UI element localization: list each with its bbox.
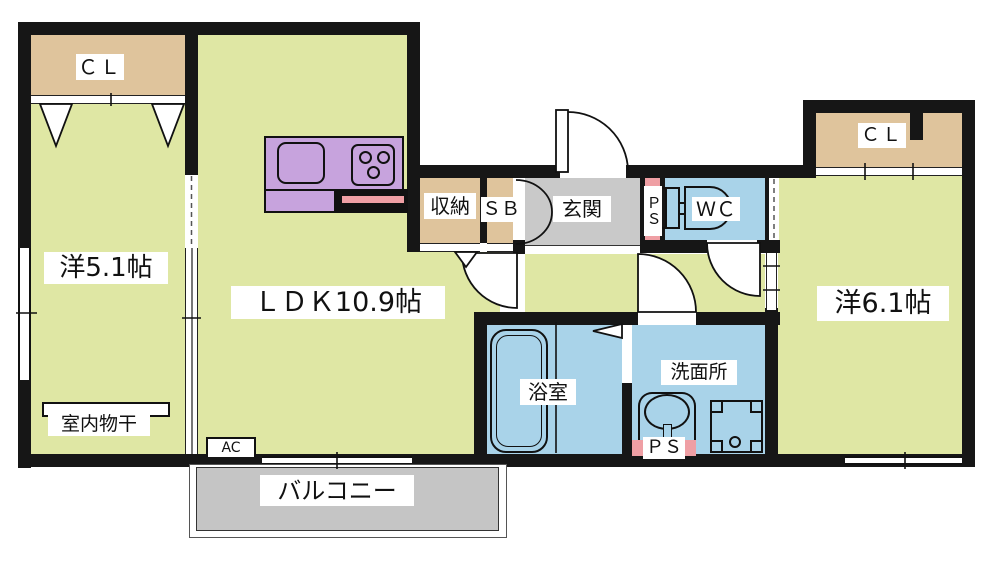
label-western-5-1: 洋5.1帖 — [44, 252, 168, 284]
bath-folding-door-icon — [593, 324, 622, 338]
shoe-box-door-arc — [516, 212, 552, 244]
label-entrance: 玄関 — [553, 196, 611, 222]
wc-door-arc — [707, 243, 760, 296]
label-pipe-space-bottom: ＰＳ — [643, 437, 685, 459]
label-ldk: ＬＤＫ10.9帖 — [231, 286, 445, 319]
shoe-box-door-arc — [516, 180, 552, 212]
entrance-door-leaf — [556, 110, 568, 172]
label-closet-right: ＣＬ — [858, 123, 906, 148]
label-washroom: 洗面所 — [661, 360, 737, 385]
entrance-door-arc — [568, 112, 628, 170]
floor-plan: ＣＬ 洋5.1帖 ＬＤＫ10.9帖 収納 ＳＢ 玄関 ＰＳ ＷＣ ＣＬ 洋6.1… — [0, 0, 1000, 562]
label-ac: AC — [212, 439, 250, 456]
label-balcony: バルコニー — [260, 475, 414, 506]
closet-left-door-icon — [40, 104, 72, 146]
washroom-door-arc — [638, 254, 696, 312]
closet-left-door-icon — [152, 104, 184, 146]
label-pipe-space-top: ＰＳ — [644, 186, 662, 236]
label-western-6-1: 洋6.1帖 — [817, 286, 949, 321]
label-closet-left: ＣＬ — [76, 54, 124, 80]
label-shoe-box: ＳＢ — [481, 197, 521, 222]
label-wc: ＷＣ — [692, 197, 740, 221]
label-bath: 浴室 — [520, 379, 576, 405]
label-storage: 収納 — [424, 193, 476, 219]
label-indoor-drying: 室内物干 — [48, 412, 150, 436]
